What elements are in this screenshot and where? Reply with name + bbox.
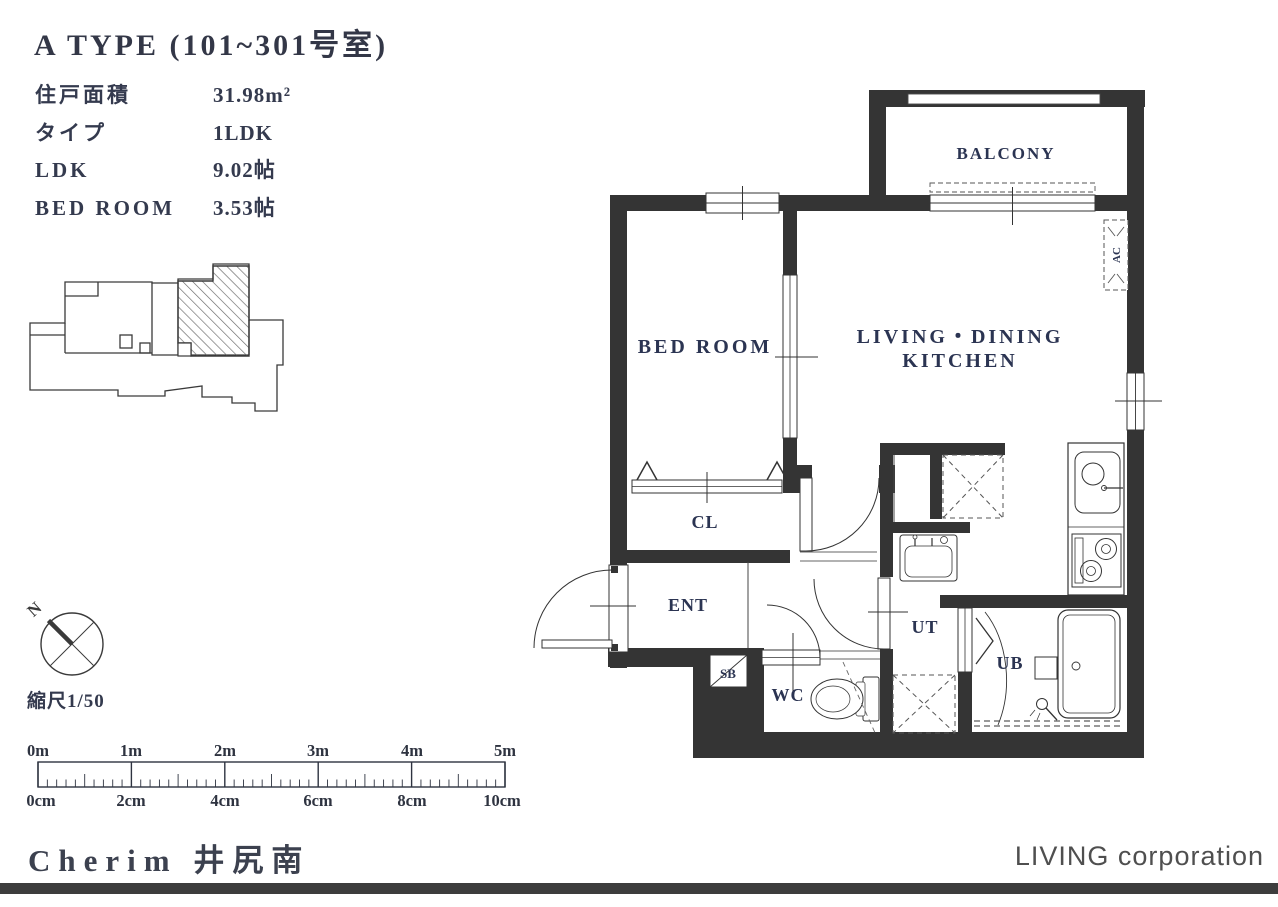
ruler-label: 3m	[307, 742, 329, 760]
room-label-toilet: WC	[772, 685, 805, 705]
living-hall-door	[800, 478, 879, 561]
room-label-ldk-line2: KITCHEN	[902, 350, 1017, 372]
info-value: 31.98m²	[213, 83, 291, 107]
bedroom-window	[706, 186, 779, 220]
info-row-area: 住戸面積31.98m²	[35, 79, 291, 117]
room-label-closet: CL	[691, 512, 718, 532]
refrigerator-space	[943, 455, 1003, 518]
info-label: 住戸面積	[35, 79, 213, 109]
room-label-bath: UB	[996, 653, 1023, 673]
living-east-window	[1115, 373, 1162, 430]
ruler-label: 8cm	[397, 791, 427, 810]
ruler-label: 0m	[27, 742, 49, 760]
info-label: タイプ	[35, 117, 213, 147]
page-title: A TYPE (101~301号室)	[34, 20, 388, 64]
washbasin	[900, 535, 957, 581]
ruler-label: 4m	[401, 742, 423, 760]
ruler-label: 2cm	[116, 791, 146, 810]
utility-door	[814, 577, 908, 649]
room-label-shoebox: SB	[720, 666, 736, 681]
company-logo-text: LIVING corporation	[1015, 841, 1264, 872]
ruler-meter-labels: 0m 1m 2m 3m 4m 5m	[27, 742, 516, 760]
info-label: BED ROOM	[35, 196, 213, 221]
room-label-balcony: BALCONY	[956, 144, 1055, 163]
ruler-label: 1m	[120, 742, 142, 760]
bathtub	[1058, 610, 1120, 718]
north-arrow	[49, 621, 73, 645]
kitchen-counter	[1068, 443, 1124, 595]
ruler-label: 6cm	[303, 791, 333, 810]
info-value: 1LDK	[213, 121, 273, 145]
room-label-ldk-line1: LIVING・DINING	[857, 326, 1064, 348]
ruler-label: 4cm	[210, 791, 240, 810]
shower-head-icon	[1037, 699, 1048, 710]
bedroom-sliding-door	[775, 275, 818, 438]
building-name: Cherim 井尻南	[28, 835, 310, 880]
north-label: N	[24, 598, 46, 621]
unit-info-table: 住戸面積31.98m² タイプ1LDK LDK9.02帖 BED ROOM3.5…	[35, 79, 291, 229]
info-row-bedroom: BED ROOM3.53帖	[35, 192, 291, 230]
compass-north-indicator: N	[20, 593, 120, 693]
scale-note: 縮尺1/50	[27, 686, 105, 713]
entrance-door	[534, 565, 636, 652]
closet-folding-door	[632, 462, 787, 503]
ruler-label: 2m	[214, 742, 236, 760]
footer-divider-bar	[0, 883, 1278, 894]
ruler-cm-labels: 0cm 2cm 4cm 6cm 8cm 10cm	[26, 791, 521, 810]
room-label-entrance: ENT	[668, 595, 708, 615]
info-label: LDK	[35, 158, 213, 183]
bath-folding-door	[958, 608, 993, 672]
balcony-railing	[908, 94, 1100, 104]
openings	[706, 94, 1162, 438]
toilet	[811, 662, 879, 735]
ruler-label: 5m	[494, 742, 516, 760]
info-value: 9.02帖	[213, 158, 276, 182]
room-label-bedroom: BED ROOM	[638, 336, 773, 358]
building-locator-map	[25, 253, 295, 423]
info-row-type: タイプ1LDK	[35, 117, 291, 155]
floor-plan: BALCONY BED ROOM LIVING・DINING KITCHEN C…	[530, 75, 1170, 775]
room-label-ac: AC	[1111, 247, 1123, 263]
balcony-sliding-door	[930, 183, 1095, 225]
floorplan-page: { "header": { "title": "A TYPE (101~301号…	[0, 0, 1278, 907]
info-value: 3.53帖	[213, 196, 276, 220]
scale-ruler: 0m 1m 2m 3m 4m 5m 0cm 2cm 4cm 6cm 8cm 10…	[25, 742, 525, 817]
room-label-utility: UT	[911, 617, 938, 637]
info-row-ldk: LDK9.02帖	[35, 154, 291, 192]
washing-machine-space	[893, 675, 955, 733]
ruler-label: 10cm	[483, 791, 521, 810]
stove	[1072, 534, 1121, 587]
ruler-label: 0cm	[26, 791, 56, 810]
